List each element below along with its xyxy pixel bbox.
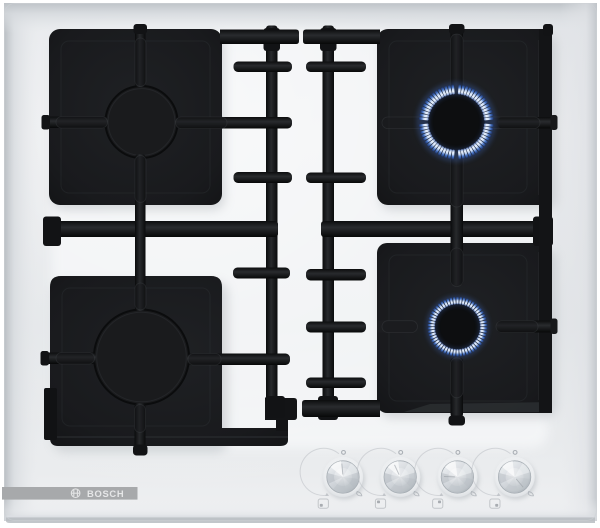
svg-text:BOSCH: BOSCH xyxy=(87,488,124,499)
